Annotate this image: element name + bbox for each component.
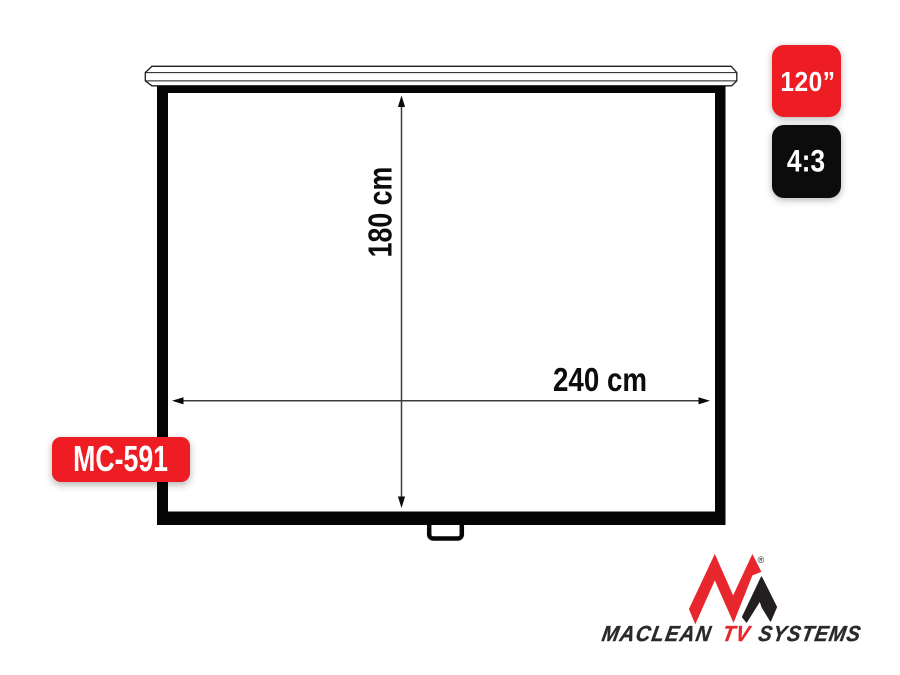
- svg-text:MACLEAN: MACLEAN: [600, 622, 714, 646]
- svg-text:180 cm: 180 cm: [363, 167, 399, 258]
- svg-text:240 cm: 240 cm: [553, 362, 647, 399]
- svg-text:TV: TV: [721, 622, 754, 646]
- svg-text:SYSTEMS: SYSTEMS: [757, 622, 864, 646]
- svg-text:®: ®: [758, 555, 765, 565]
